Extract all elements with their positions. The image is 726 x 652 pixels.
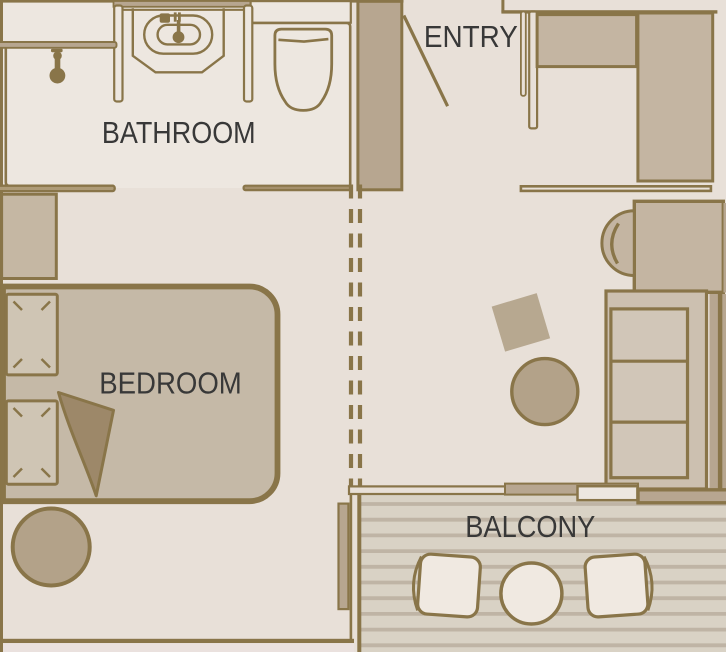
svg-text:BATHROOM: BATHROOM	[102, 116, 256, 150]
svg-text:BALCONY: BALCONY	[465, 510, 595, 544]
svg-text:ENTRY: ENTRY	[424, 19, 518, 54]
svg-text:BEDROOM: BEDROOM	[99, 366, 241, 401]
